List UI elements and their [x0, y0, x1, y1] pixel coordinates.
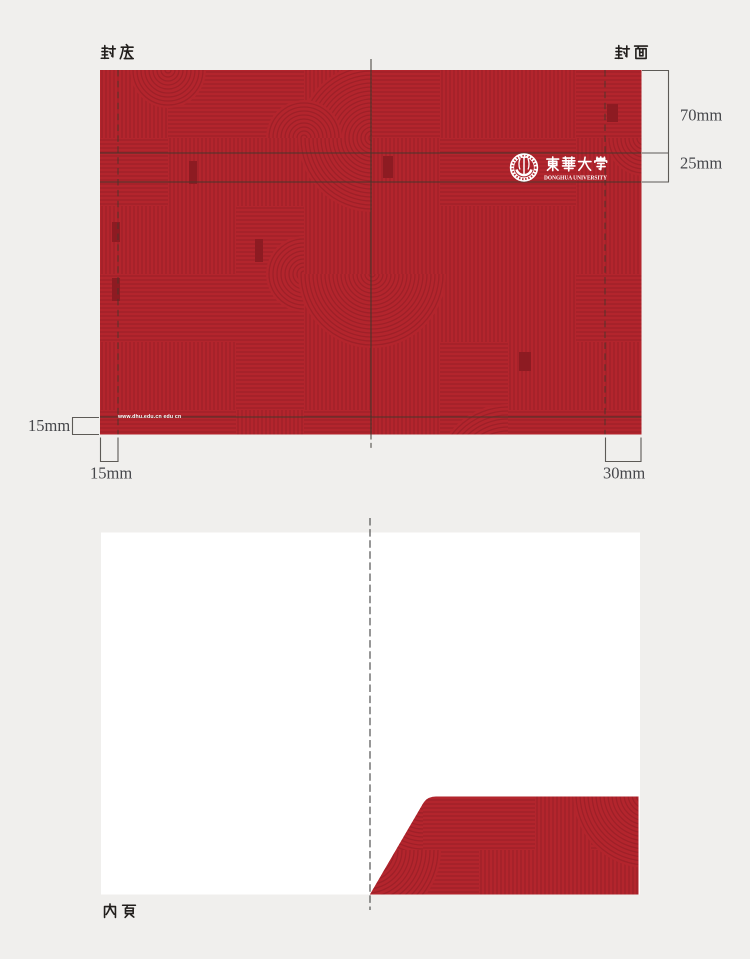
svg-text:www.dhu.edu.cn edu cn: www.dhu.edu.cn edu cn: [117, 414, 181, 420]
svg-text:25mm: 25mm: [680, 154, 722, 173]
svg-text:15mm: 15mm: [28, 416, 70, 435]
svg-text:30mm: 30mm: [603, 464, 645, 483]
svg-text:70mm: 70mm: [680, 106, 722, 125]
svg-text:15mm: 15mm: [90, 464, 132, 483]
svg-text:DONGHUA UNIVERSITY: DONGHUA UNIVERSITY: [544, 175, 607, 182]
